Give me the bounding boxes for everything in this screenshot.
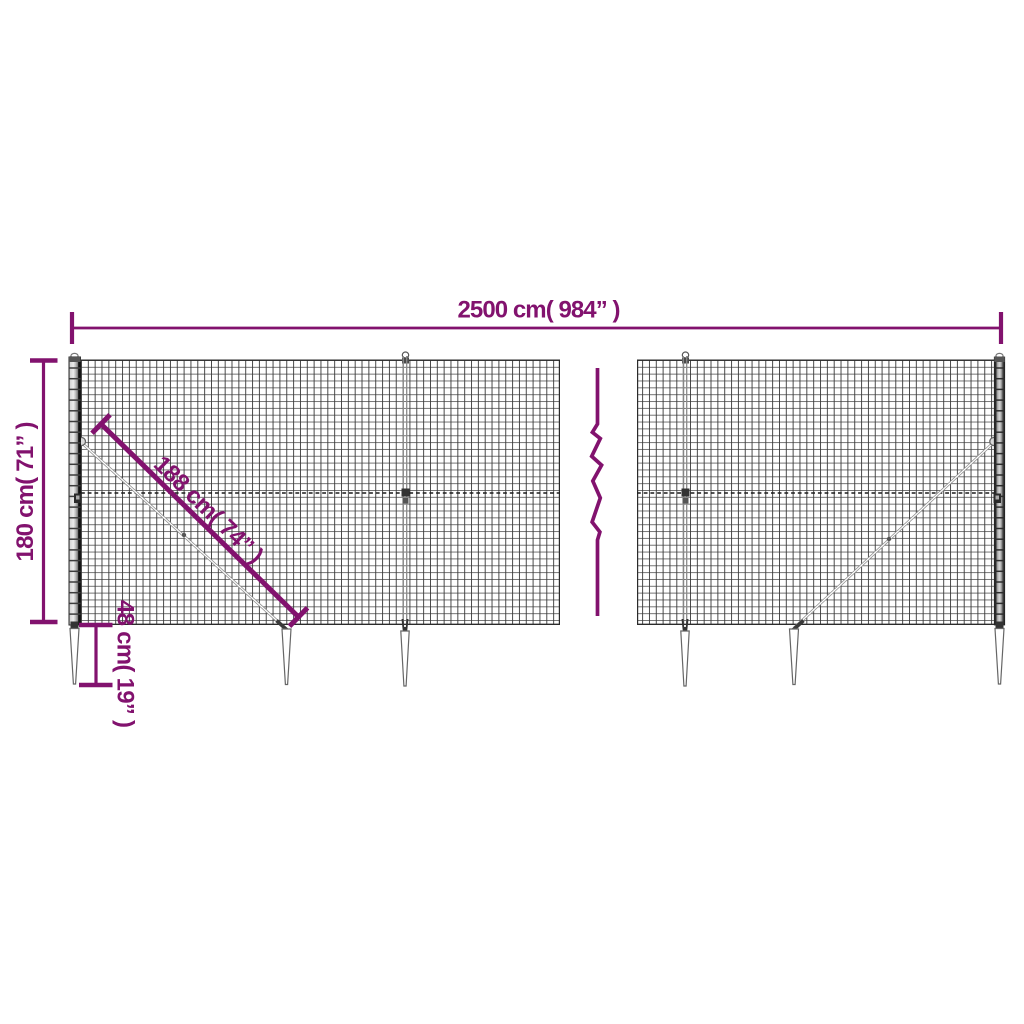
svg-text:180 cm( 71” ): 180 cm( 71” ) bbox=[12, 422, 39, 562]
svg-text:48 cm( 19” ): 48 cm( 19” ) bbox=[112, 600, 139, 728]
svg-text:2500 cm( 984” ): 2500 cm( 984” ) bbox=[458, 297, 621, 324]
